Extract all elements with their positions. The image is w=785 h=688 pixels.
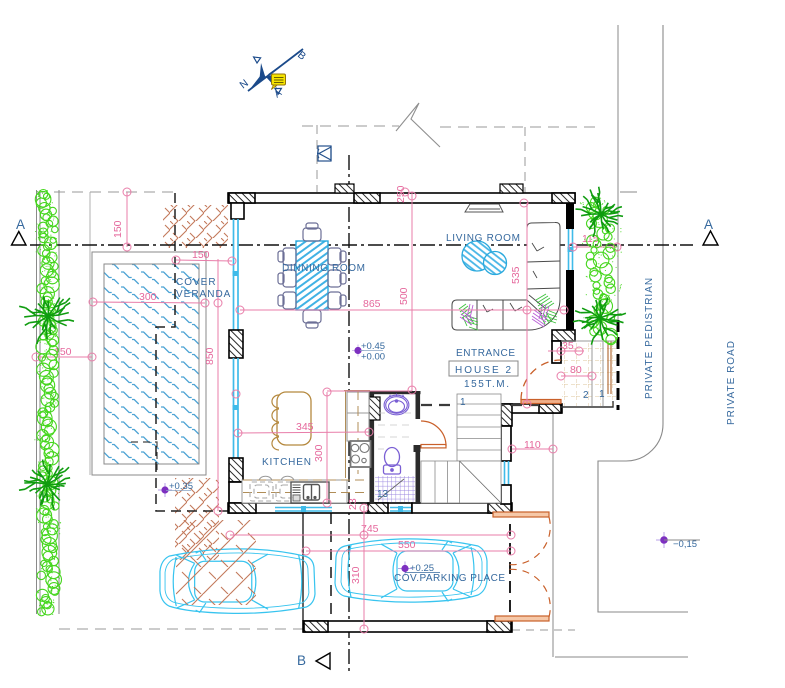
svg-text:535: 535 — [510, 266, 522, 284]
svg-text:PRIVATE PEDISTRIAN: PRIVATE PEDISTRIAN — [644, 277, 655, 399]
svg-text:110: 110 — [524, 439, 541, 451]
svg-text:150: 150 — [192, 249, 210, 261]
svg-text:310: 310 — [350, 566, 362, 584]
svg-text:−0,15: −0,15 — [673, 539, 697, 550]
svg-text:LIVING ROOM: LIVING ROOM — [446, 233, 521, 244]
svg-text:865: 865 — [363, 298, 381, 310]
svg-text:A: A — [704, 217, 713, 232]
svg-text:150: 150 — [112, 220, 124, 238]
svg-text:DINNING ROOM: DINNING ROOM — [282, 263, 366, 274]
svg-text:COVER: COVER — [176, 277, 217, 288]
svg-text:300: 300 — [139, 291, 157, 303]
svg-text:VERANDA: VERANDA — [176, 289, 231, 300]
svg-text:KITCHEN: KITCHEN — [262, 457, 312, 468]
svg-text:1: 1 — [460, 397, 466, 408]
svg-text:35: 35 — [562, 340, 574, 352]
svg-text:A: A — [16, 217, 25, 232]
svg-text:13: 13 — [377, 489, 389, 500]
svg-text:PRIVATE ROAD: PRIVATE ROAD — [726, 340, 737, 425]
svg-text:345: 345 — [296, 421, 314, 433]
svg-text:COV.PARKING PLACE: COV.PARKING PLACE — [394, 573, 506, 584]
svg-text:500: 500 — [398, 287, 410, 305]
svg-text:2: 2 — [583, 390, 589, 401]
svg-text:155T.M.: 155T.M. — [464, 379, 510, 390]
svg-text:+0.00: +0.00 — [361, 352, 385, 363]
svg-text:550: 550 — [398, 539, 416, 551]
svg-text:23: 23 — [347, 498, 359, 510]
svg-text:+0.35: +0.35 — [169, 481, 193, 492]
svg-text:B: B — [297, 653, 306, 668]
svg-text:1: 1 — [599, 389, 605, 400]
svg-text:300: 300 — [313, 444, 325, 462]
svg-text:80: 80 — [570, 364, 582, 376]
svg-text:HOUSE 2: HOUSE 2 — [455, 365, 512, 376]
svg-text:ENTRANCE: ENTRANCE — [456, 348, 516, 359]
svg-text:850: 850 — [204, 347, 216, 365]
svg-text:+0.45: +0.45 — [361, 341, 385, 352]
